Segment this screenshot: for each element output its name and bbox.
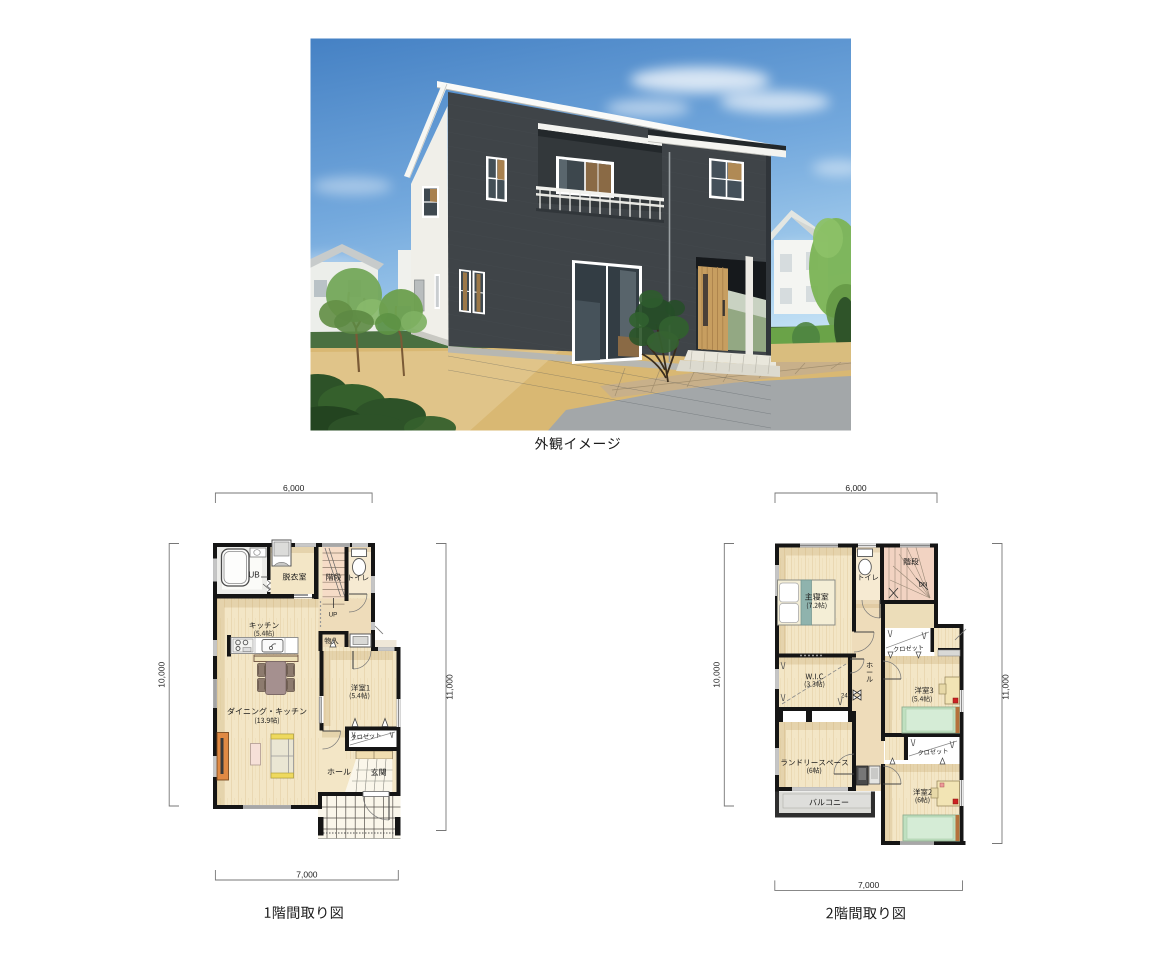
svg-text:11,000: 11,000 xyxy=(1001,674,1011,700)
svg-text:UP: UP xyxy=(329,612,338,619)
svg-text:UB: UB xyxy=(248,571,260,580)
svg-text:10,000: 10,000 xyxy=(712,662,722,688)
svg-text:DN: DN xyxy=(919,582,928,589)
svg-text:11,000: 11,000 xyxy=(445,674,455,700)
svg-text:7,000: 7,000 xyxy=(858,880,880,890)
svg-text:7,000: 7,000 xyxy=(296,870,318,880)
svg-text:6,000: 6,000 xyxy=(845,483,867,493)
svg-text:24H: 24H xyxy=(841,694,852,700)
svg-text:10,000: 10,000 xyxy=(157,662,167,688)
svg-text:6,000: 6,000 xyxy=(283,483,305,493)
